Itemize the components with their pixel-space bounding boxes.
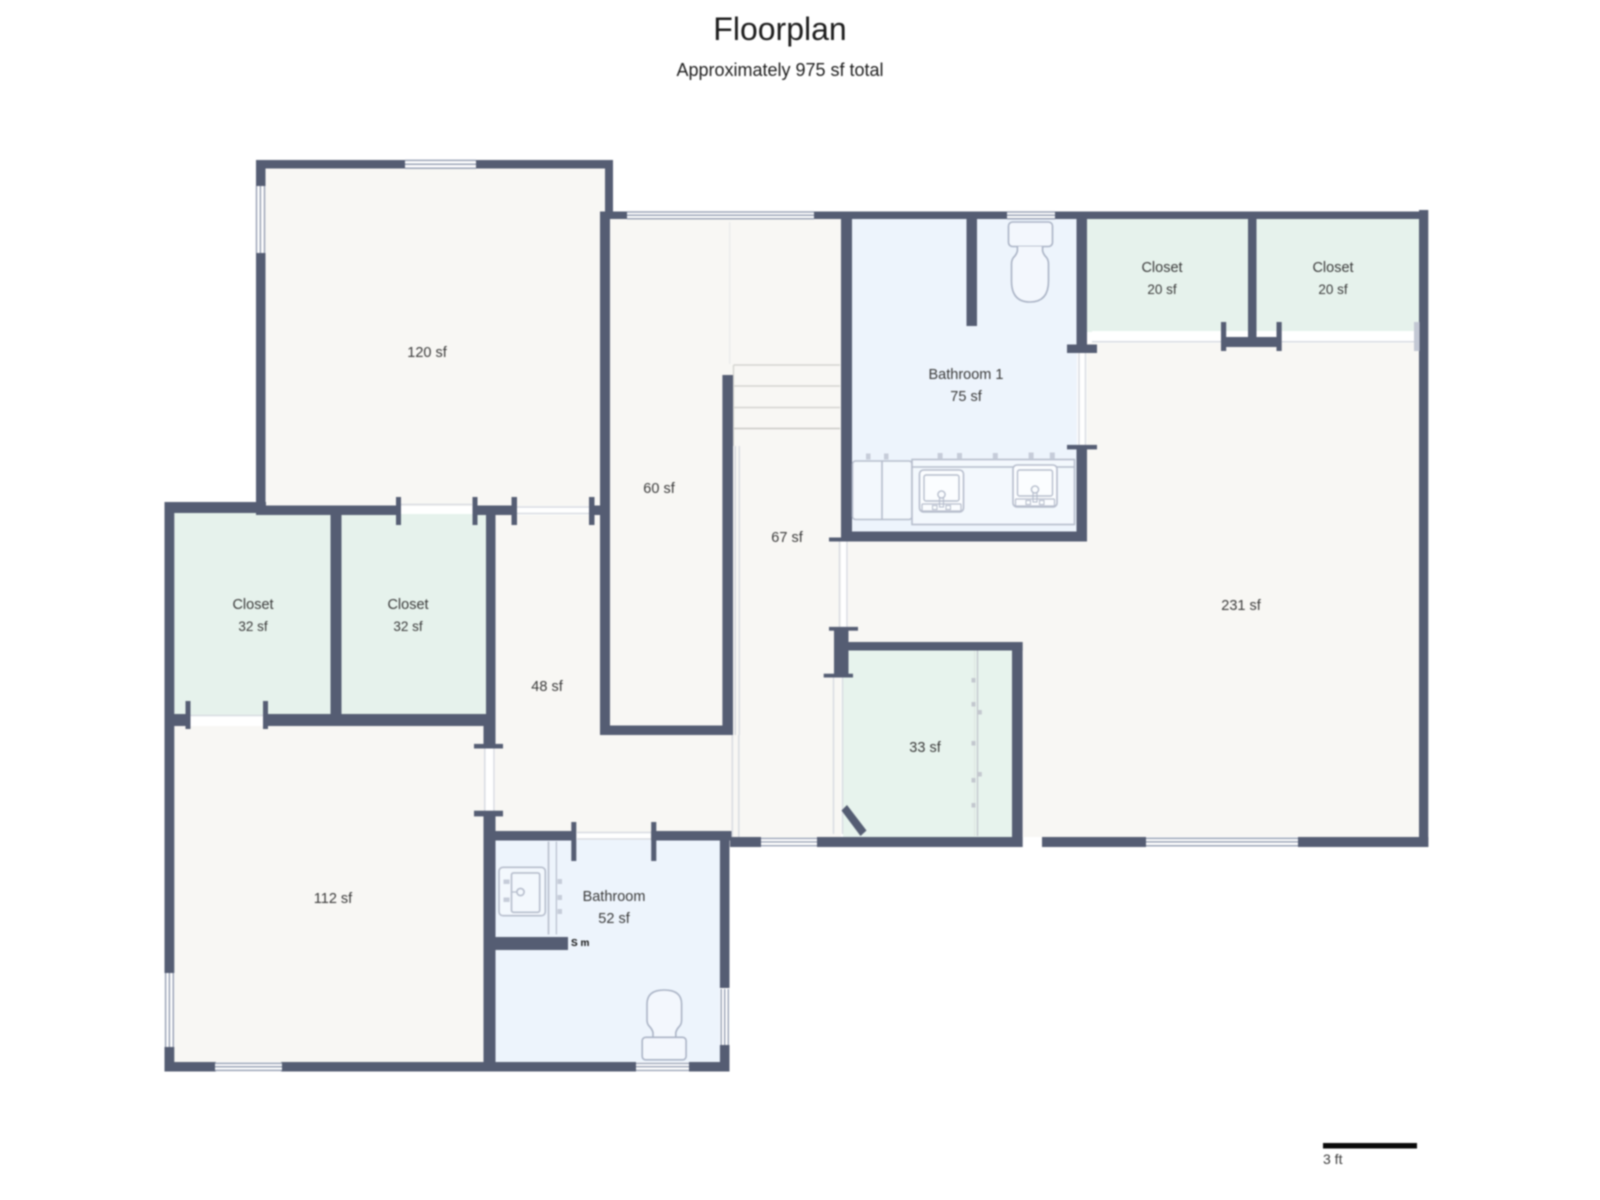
svg-text:Closet: Closet — [1312, 260, 1353, 276]
svg-text:Floorplan: Floorplan — [713, 11, 846, 47]
svg-text:Closet: Closet — [387, 597, 428, 613]
svg-text:Closet: Closet — [232, 597, 273, 613]
svg-text:120 sf: 120 sf — [407, 345, 447, 361]
svg-text:32 sf: 32 sf — [238, 619, 268, 634]
svg-text:Bathroom: Bathroom — [583, 889, 646, 905]
svg-text:32 sf: 32 sf — [393, 619, 423, 634]
svg-text:20 sf: 20 sf — [1147, 282, 1177, 297]
svg-text:60 sf: 60 sf — [643, 481, 675, 497]
svg-text:52 sf: 52 sf — [598, 911, 630, 927]
svg-text:S m: S m — [571, 938, 589, 949]
svg-text:33 sf: 33 sf — [909, 740, 941, 756]
svg-text:Approximately 975 sf total: Approximately 975 sf total — [676, 60, 883, 80]
svg-text:67 sf: 67 sf — [771, 530, 803, 546]
svg-text:20 sf: 20 sf — [1318, 282, 1348, 297]
svg-text:231 sf: 231 sf — [1221, 598, 1261, 614]
svg-text:48 sf: 48 sf — [531, 679, 563, 695]
svg-text:75 sf: 75 sf — [950, 389, 982, 405]
svg-text:112 sf: 112 sf — [314, 891, 353, 907]
svg-text:Bathroom 1: Bathroom 1 — [929, 367, 1004, 383]
svg-text:Closet: Closet — [1141, 260, 1182, 276]
svg-text:3 ft: 3 ft — [1323, 1151, 1343, 1167]
